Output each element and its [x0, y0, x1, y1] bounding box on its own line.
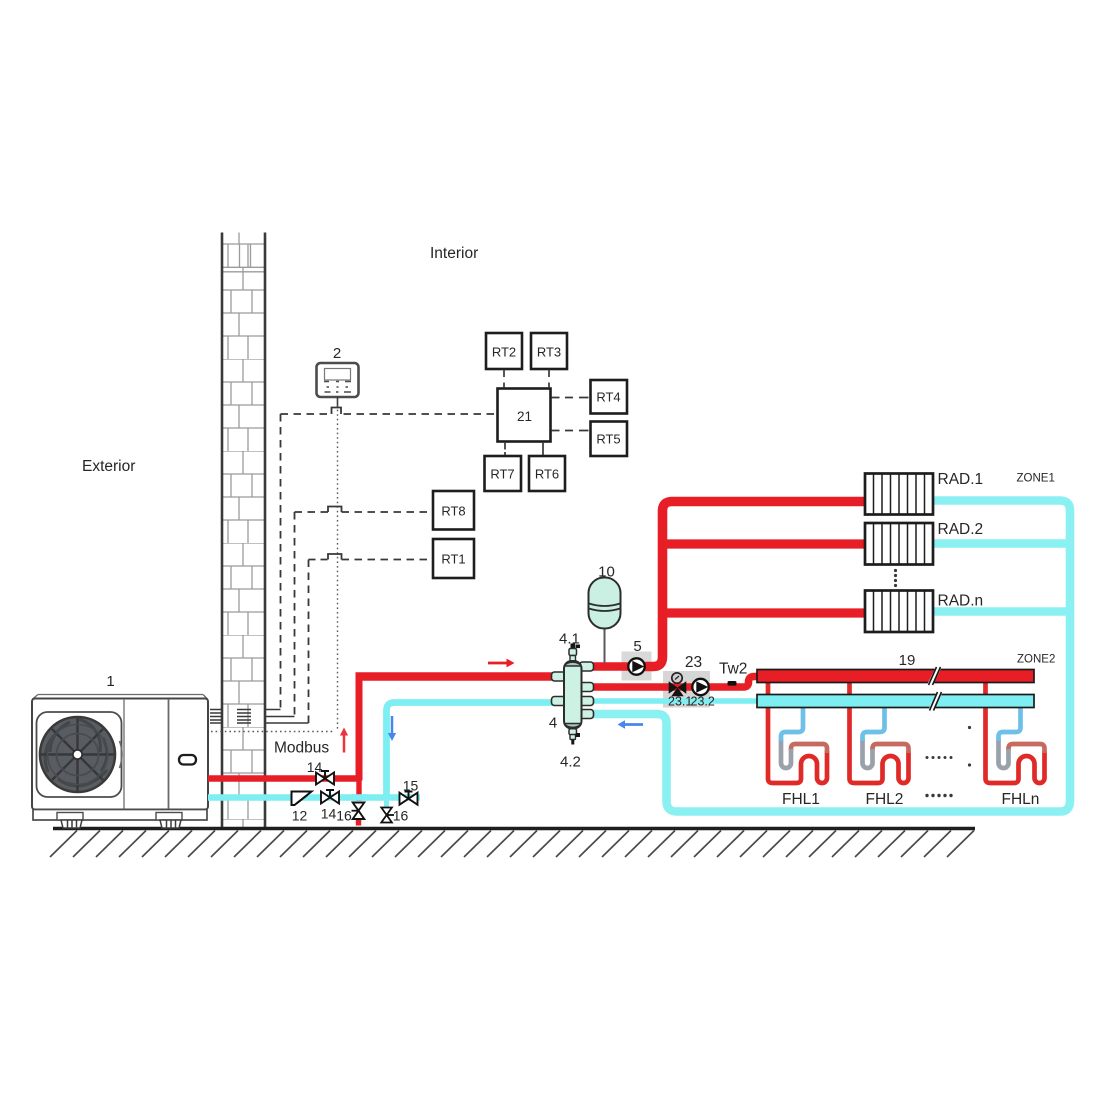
svg-text:12: 12	[292, 808, 308, 824]
svg-text:21: 21	[517, 409, 532, 424]
svg-text:ZONE1: ZONE1	[1017, 473, 1055, 485]
svg-text:RT2: RT2	[492, 345, 516, 360]
svg-text:23.2: 23.2	[691, 695, 715, 709]
svg-text:Interior: Interior	[430, 245, 478, 262]
svg-text:2: 2	[333, 345, 341, 362]
svg-text:16: 16	[336, 808, 352, 824]
svg-text:4.1: 4.1	[559, 631, 580, 648]
svg-text:FHL1: FHL1	[782, 791, 820, 808]
svg-text:23.1: 23.1	[668, 695, 692, 709]
svg-text:RAD.2: RAD.2	[938, 521, 984, 538]
svg-text:4: 4	[549, 715, 557, 732]
svg-text:RT5: RT5	[596, 432, 620, 447]
svg-text:Exterior: Exterior	[82, 458, 135, 475]
svg-text:RT8: RT8	[441, 504, 465, 519]
svg-text:Tw2: Tw2	[719, 661, 747, 678]
svg-text:RT6: RT6	[535, 467, 559, 482]
svg-text:RT7: RT7	[490, 467, 514, 482]
svg-text:Modbus: Modbus	[274, 740, 329, 757]
svg-text:4.2: 4.2	[560, 754, 581, 771]
svg-text:23: 23	[685, 654, 702, 671]
svg-text:16: 16	[393, 808, 409, 824]
svg-text:RT1: RT1	[441, 552, 465, 567]
svg-text:RAD.n: RAD.n	[938, 593, 984, 610]
svg-text:1: 1	[106, 673, 114, 690]
svg-text:RT3: RT3	[537, 345, 561, 360]
svg-text:FHLn: FHLn	[1002, 791, 1040, 808]
svg-text:5: 5	[633, 638, 641, 655]
svg-text:ZONE2: ZONE2	[1017, 654, 1055, 666]
svg-text:RAD.1: RAD.1	[938, 471, 984, 488]
svg-text:FHL2: FHL2	[866, 791, 904, 808]
svg-text:RT4: RT4	[596, 390, 620, 405]
svg-text:19: 19	[899, 652, 916, 669]
svg-text:14: 14	[307, 759, 323, 775]
svg-text:14: 14	[321, 806, 337, 822]
